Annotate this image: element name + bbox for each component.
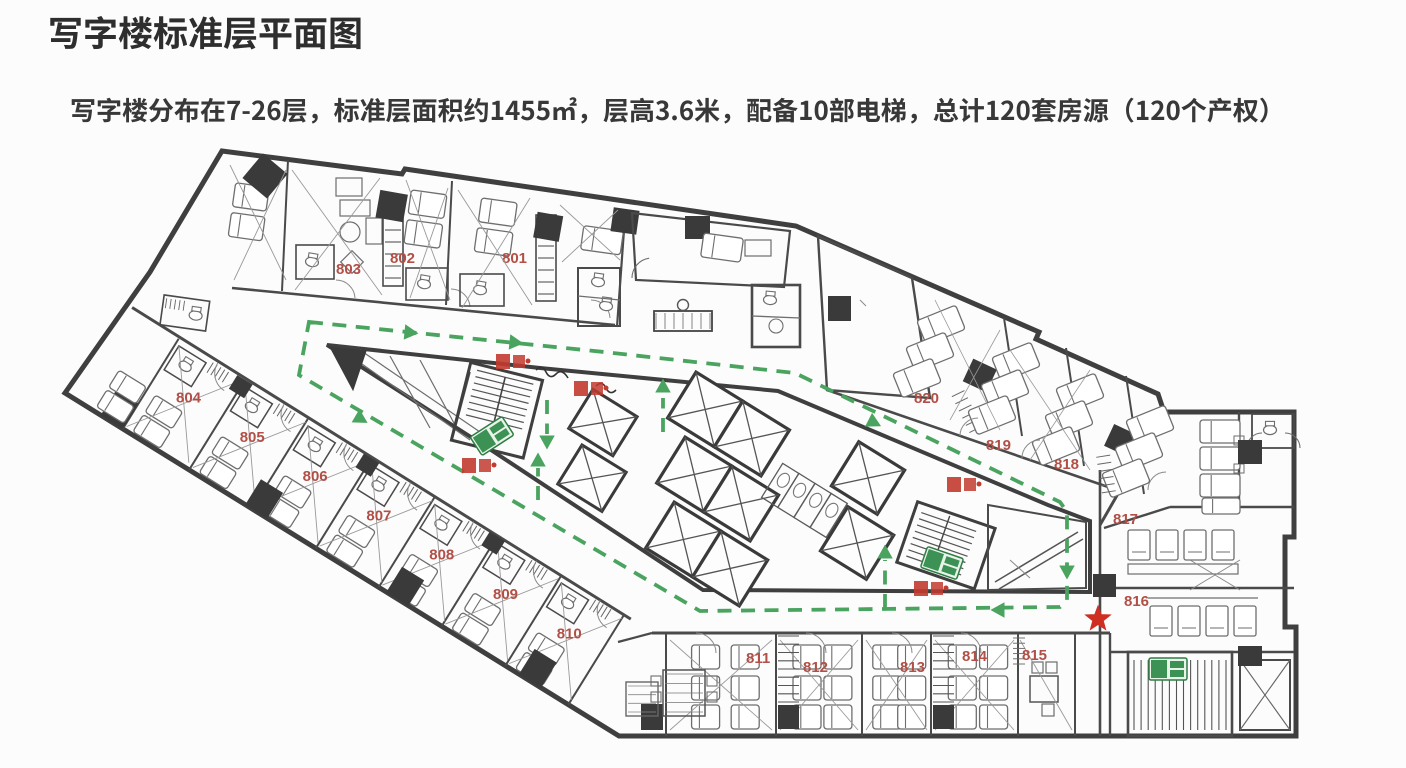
svg-text:813: 813 (900, 659, 925, 676)
svg-text:807: 807 (366, 507, 391, 524)
svg-text:819: 819 (986, 437, 1011, 454)
svg-text:810: 810 (557, 625, 582, 642)
svg-text:811: 811 (746, 650, 770, 667)
svg-text:808: 808 (429, 546, 454, 563)
svg-text:814: 814 (962, 648, 988, 665)
svg-text:818: 818 (1054, 456, 1079, 473)
svg-text:804: 804 (176, 389, 202, 406)
svg-text:816: 816 (1124, 593, 1149, 610)
svg-text:805: 805 (240, 429, 265, 446)
svg-text:809: 809 (493, 586, 518, 603)
svg-text:812: 812 (803, 659, 828, 676)
svg-text:820: 820 (914, 390, 939, 407)
svg-text:802: 802 (390, 250, 415, 267)
svg-text:803: 803 (336, 261, 361, 278)
svg-text:817: 817 (1113, 511, 1138, 528)
svg-text:806: 806 (303, 468, 328, 485)
svg-text:815: 815 (1022, 647, 1047, 664)
